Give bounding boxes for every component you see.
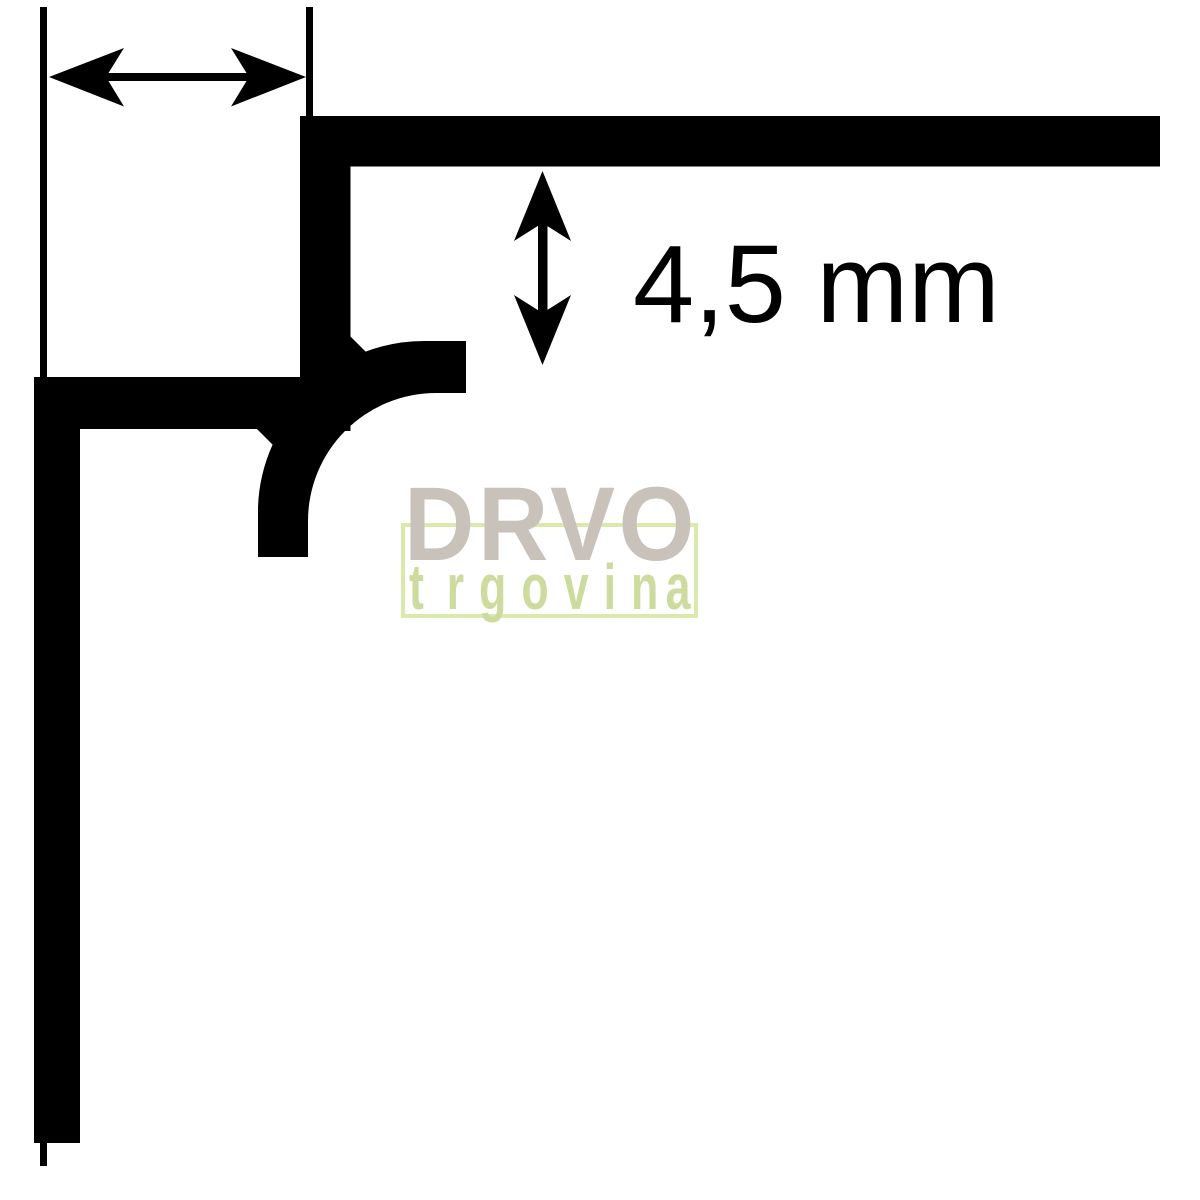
- svg-text:trgovina: trgovina: [409, 551, 706, 623]
- svg-text:4,5 mm: 4,5 mm: [633, 223, 1000, 346]
